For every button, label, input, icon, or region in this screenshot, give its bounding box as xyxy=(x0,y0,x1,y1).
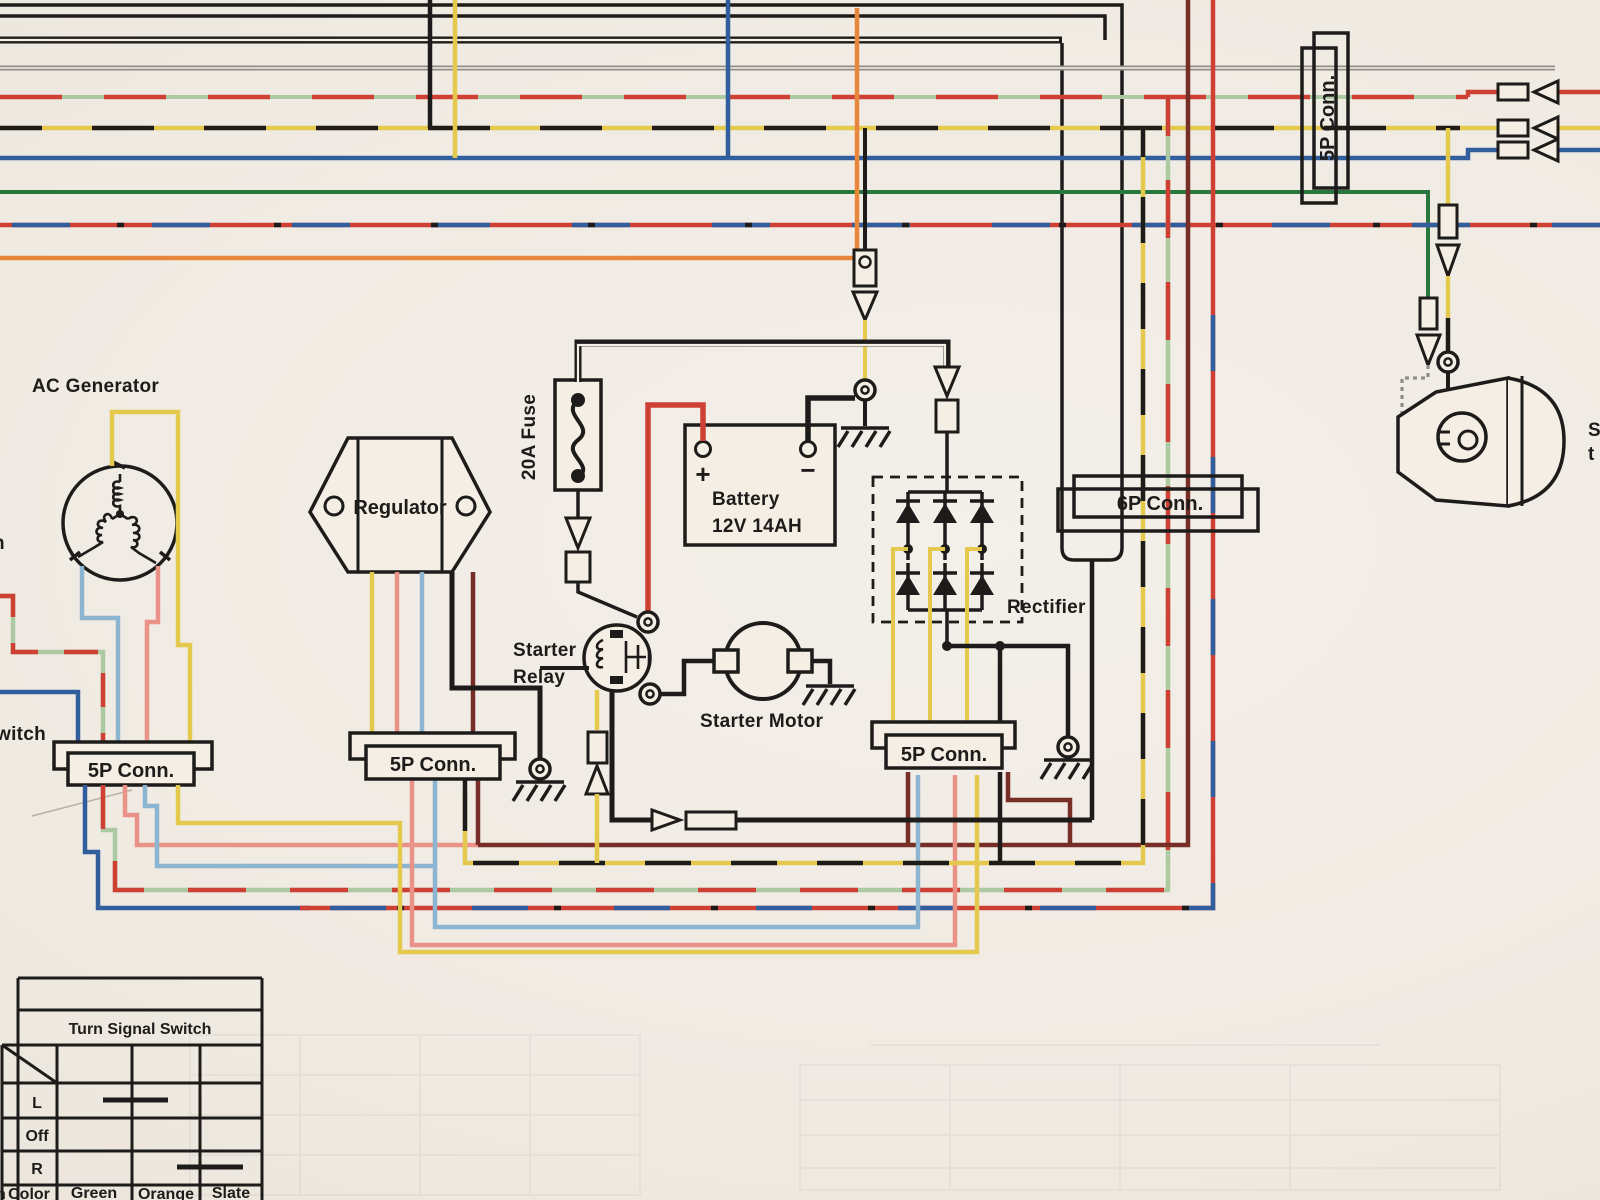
battery-label-2: 12V 14AH xyxy=(712,516,802,537)
starter-motor-label: Starter Motor xyxy=(700,711,823,732)
connector-5p-starter-label: 5P Conn. xyxy=(901,744,987,766)
clipped-label-switch-2: witch xyxy=(0,724,46,745)
ring-terminal xyxy=(1438,352,1458,372)
ring-terminal xyxy=(530,759,550,779)
fuse-label: 20A Fuse xyxy=(519,394,540,480)
connector-5p-left-label: 5P Conn. xyxy=(88,760,174,782)
ground-icon xyxy=(838,428,890,447)
clipped-label-switch-1: h xyxy=(0,533,5,554)
clipped-right-label-1: S xyxy=(1588,420,1600,441)
connector-5p-left: 5P Conn. xyxy=(54,742,212,785)
ring-terminal xyxy=(638,612,658,632)
battery: + − Battery 12V 14AH xyxy=(648,398,855,614)
connector-5p-regulator-label: 5P Conn. xyxy=(390,754,476,776)
connector-5p-starter: 5P Conn. xyxy=(872,722,1015,768)
ring-terminal xyxy=(640,684,660,704)
switch-contact-bars xyxy=(103,1100,243,1167)
clipped-bottom-left: n xyxy=(0,1186,6,1200)
ac-generator: AC Generator xyxy=(32,376,190,744)
column-slate: Slate xyxy=(212,1185,250,1200)
column-green: Green xyxy=(71,1185,117,1200)
tail-lamp xyxy=(1398,376,1564,506)
ring-terminal xyxy=(1058,737,1078,757)
starter-relay-label-1: Starter xyxy=(513,640,577,661)
ac-generator-label: AC Generator xyxy=(32,376,159,397)
wiring-diagram-page: AC Generator h witch 5P Conn. xyxy=(0,0,1600,1200)
column-orange: Orange xyxy=(138,1186,194,1200)
ground-icon xyxy=(1041,760,1093,779)
connector-6p: 6P Conn. xyxy=(1058,476,1258,531)
right-edge-bullet-connectors xyxy=(1498,81,1558,161)
rectifier-label: Rectifier xyxy=(1007,597,1086,618)
battery-label-1: Battery xyxy=(712,489,780,510)
table-title: Turn Signal Switch xyxy=(69,1021,212,1038)
ring-terminal xyxy=(855,380,875,400)
connector-5p-right-label: 5P Conn. xyxy=(1317,75,1339,161)
diagram-canvas: AC Generator h witch 5P Conn. xyxy=(0,0,1600,1200)
ground-icon xyxy=(803,686,855,705)
row-label-l: L xyxy=(32,1095,42,1112)
page-bleedthrough-ghosts xyxy=(190,1035,1500,1195)
connector-5p-regulator: 5P Conn. xyxy=(350,733,515,779)
starter-relay-label-2: Relay xyxy=(513,667,565,688)
color-row-label: Color xyxy=(8,1186,50,1200)
ground-icon xyxy=(513,782,565,801)
regulator-label: Regulator xyxy=(353,497,447,519)
starter-motor: Starter Motor xyxy=(660,623,855,732)
row-label-r: R xyxy=(31,1161,43,1178)
turn-signal-switch-table: Turn Signal Switch L Off R Color Green O… xyxy=(0,978,262,1200)
battery-plus: + xyxy=(695,459,710,489)
clipped-right-label-2: t xyxy=(1588,444,1595,465)
connector-5p-right: 5P Conn. xyxy=(1302,33,1348,203)
tail-lamp-circuit: S t xyxy=(1398,128,1600,506)
battery-minus: − xyxy=(800,455,815,485)
connector-6p-label: 6P Conn. xyxy=(1117,493,1203,515)
row-label-off: Off xyxy=(25,1128,49,1145)
